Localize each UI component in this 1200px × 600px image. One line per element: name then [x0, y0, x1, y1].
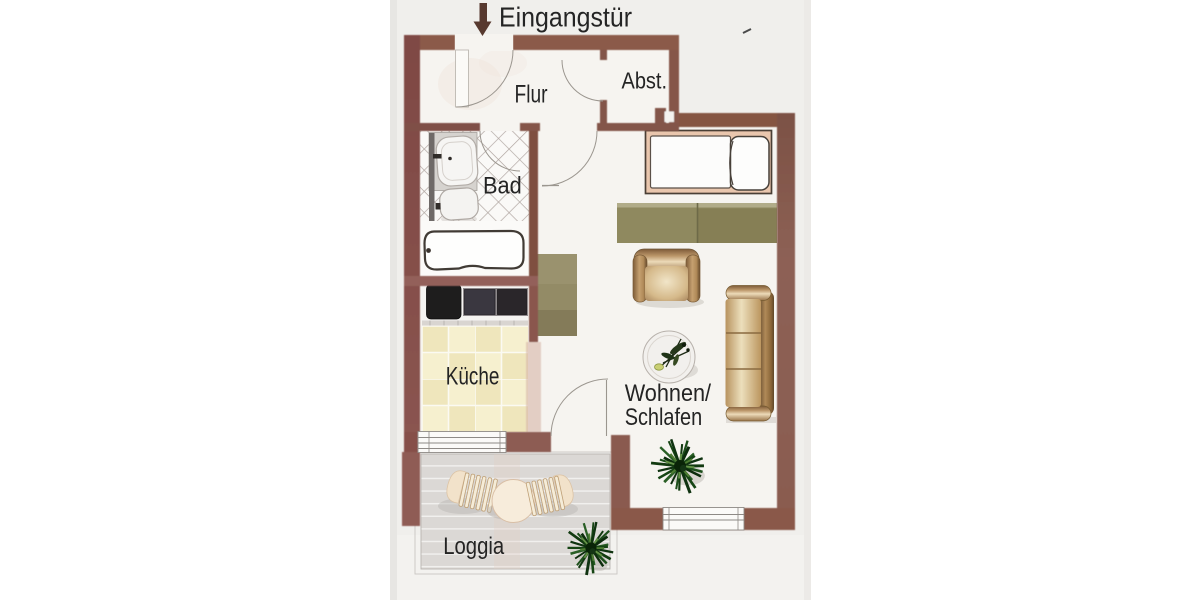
svg-text:Flur: Flur: [515, 81, 548, 109]
svg-text:Abst.: Abst.: [622, 67, 668, 93]
svg-text:Küche: Küche: [446, 362, 500, 390]
svg-text:Eingangstür: Eingangstür: [499, 2, 632, 33]
svg-text:Loggia: Loggia: [443, 533, 504, 560]
svg-text:Schlafen: Schlafen: [625, 404, 703, 431]
svg-text:Bad: Bad: [483, 173, 522, 200]
